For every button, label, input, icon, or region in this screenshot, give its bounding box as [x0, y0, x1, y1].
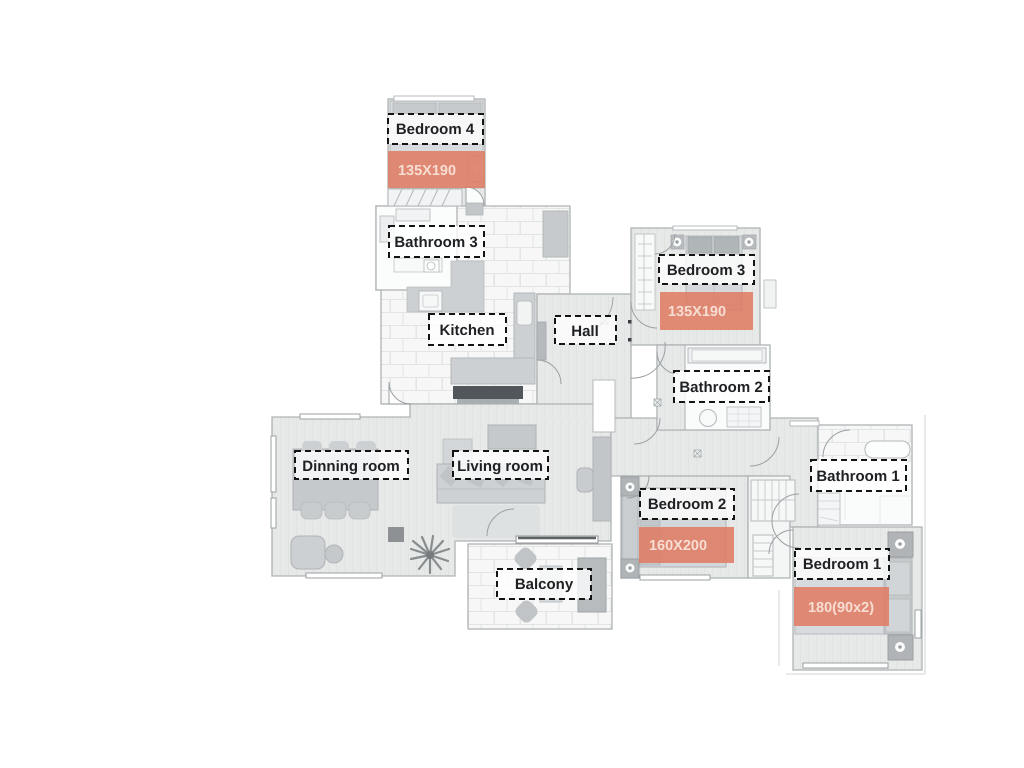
svg-text:Balcony: Balcony: [515, 576, 574, 593]
svg-text:Bedroom 1: Bedroom 1: [803, 556, 881, 573]
svg-text:135X190: 135X190: [668, 304, 726, 320]
svg-text:Bedroom 4: Bedroom 4: [396, 121, 475, 138]
svg-text:Bedroom 3: Bedroom 3: [667, 262, 745, 279]
svg-text:Bedroom 2: Bedroom 2: [648, 496, 726, 513]
svg-text:135X190: 135X190: [398, 163, 456, 179]
svg-text:Bathroom 1: Bathroom 1: [816, 468, 899, 485]
svg-text:Bathroom 2: Bathroom 2: [679, 379, 762, 396]
svg-text:Hall: Hall: [571, 323, 599, 340]
svg-text:Kitchen: Kitchen: [439, 322, 494, 339]
svg-text:Bathroom 3: Bathroom 3: [394, 234, 477, 251]
svg-text:160X200: 160X200: [649, 538, 707, 554]
svg-text:Living room: Living room: [457, 458, 543, 475]
svg-text:180(90x2): 180(90x2): [808, 600, 874, 616]
svg-text:Dinning room: Dinning room: [302, 458, 400, 475]
